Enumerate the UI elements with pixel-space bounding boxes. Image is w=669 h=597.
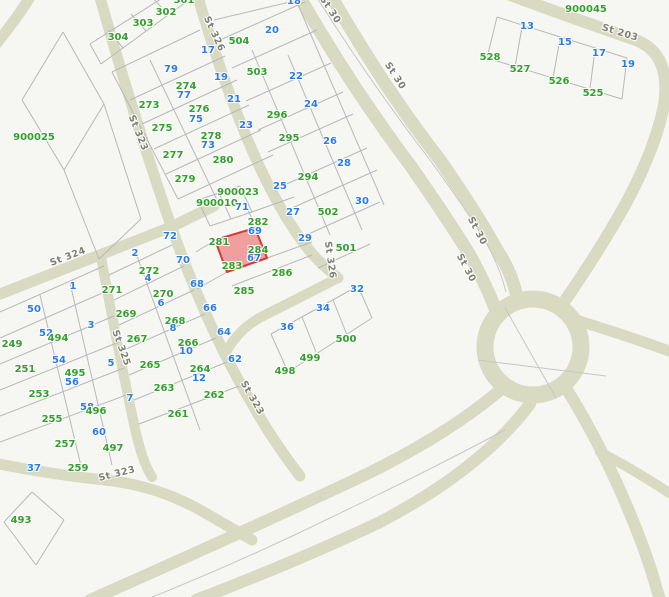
parcel-boundary xyxy=(318,244,370,268)
road xyxy=(197,0,338,278)
road xyxy=(0,0,32,44)
parcel-boundary xyxy=(64,104,104,170)
highlighted-parcel[interactable] xyxy=(215,228,267,272)
parcel-boundary xyxy=(36,520,64,565)
parcel-boundary xyxy=(32,492,64,520)
parcel-boundary xyxy=(302,317,316,352)
parcel-boundary xyxy=(119,290,194,325)
road xyxy=(566,388,660,597)
parcel-boundary xyxy=(219,193,231,219)
road xyxy=(576,320,669,352)
parcel-boundary xyxy=(131,14,146,31)
parcel-boundary xyxy=(22,100,64,170)
parcel-boundary xyxy=(196,240,215,252)
parcel-boundary xyxy=(246,206,257,229)
road xyxy=(196,404,530,597)
parcel-boundary xyxy=(553,39,560,78)
parcel-boundary xyxy=(333,300,347,335)
parcel-boundary xyxy=(114,266,184,300)
parcel-boundary xyxy=(4,522,36,565)
parcel-boundary xyxy=(22,32,63,100)
parcel-boundary xyxy=(130,56,225,100)
road xyxy=(226,278,338,352)
parcel-boundary xyxy=(129,338,216,375)
parcel-boundary xyxy=(112,30,200,72)
parcel-boundary xyxy=(304,202,380,236)
map-svg xyxy=(0,0,669,597)
roundabout xyxy=(485,299,581,395)
parcel-boundary xyxy=(220,2,305,40)
parcel-boundary xyxy=(515,27,522,67)
parcel-boundary xyxy=(4,492,32,522)
parcel-boundary xyxy=(64,170,99,259)
parcel-boundary xyxy=(246,63,331,101)
road xyxy=(502,0,665,305)
parcel-boundary xyxy=(487,17,497,58)
parcel-boundary xyxy=(240,186,252,212)
parcel-boundary xyxy=(0,342,119,390)
parcel-boundary xyxy=(232,30,317,68)
parcel-boundary xyxy=(112,72,178,199)
parcel-boundary xyxy=(70,283,112,465)
parcel-boundary xyxy=(0,290,109,338)
parcel-boundary xyxy=(197,272,227,289)
map-canvas[interactable]: St 326St 30St 30St 203St 323St 324St 325… xyxy=(0,0,669,597)
road xyxy=(0,463,252,540)
parcel-boundary xyxy=(40,295,82,470)
parcel-boundary xyxy=(590,50,595,88)
parcel-boundary xyxy=(0,368,124,416)
parcel-boundary xyxy=(487,58,622,99)
parcel-boundary xyxy=(90,44,101,64)
parcel-boundary xyxy=(497,17,627,58)
parcel-boundary xyxy=(63,32,104,104)
road-centerline xyxy=(316,0,506,292)
parcel-boundary xyxy=(252,50,330,235)
parcel-boundary xyxy=(622,58,627,99)
parcel-boundary xyxy=(134,362,227,400)
parcel-boundary xyxy=(214,0,298,20)
parcel-boundary xyxy=(358,286,372,318)
parcel-boundary xyxy=(288,318,372,372)
parcel-boundary xyxy=(271,334,288,372)
parcel-boundary xyxy=(0,316,114,364)
parcel-boundary xyxy=(0,394,129,442)
